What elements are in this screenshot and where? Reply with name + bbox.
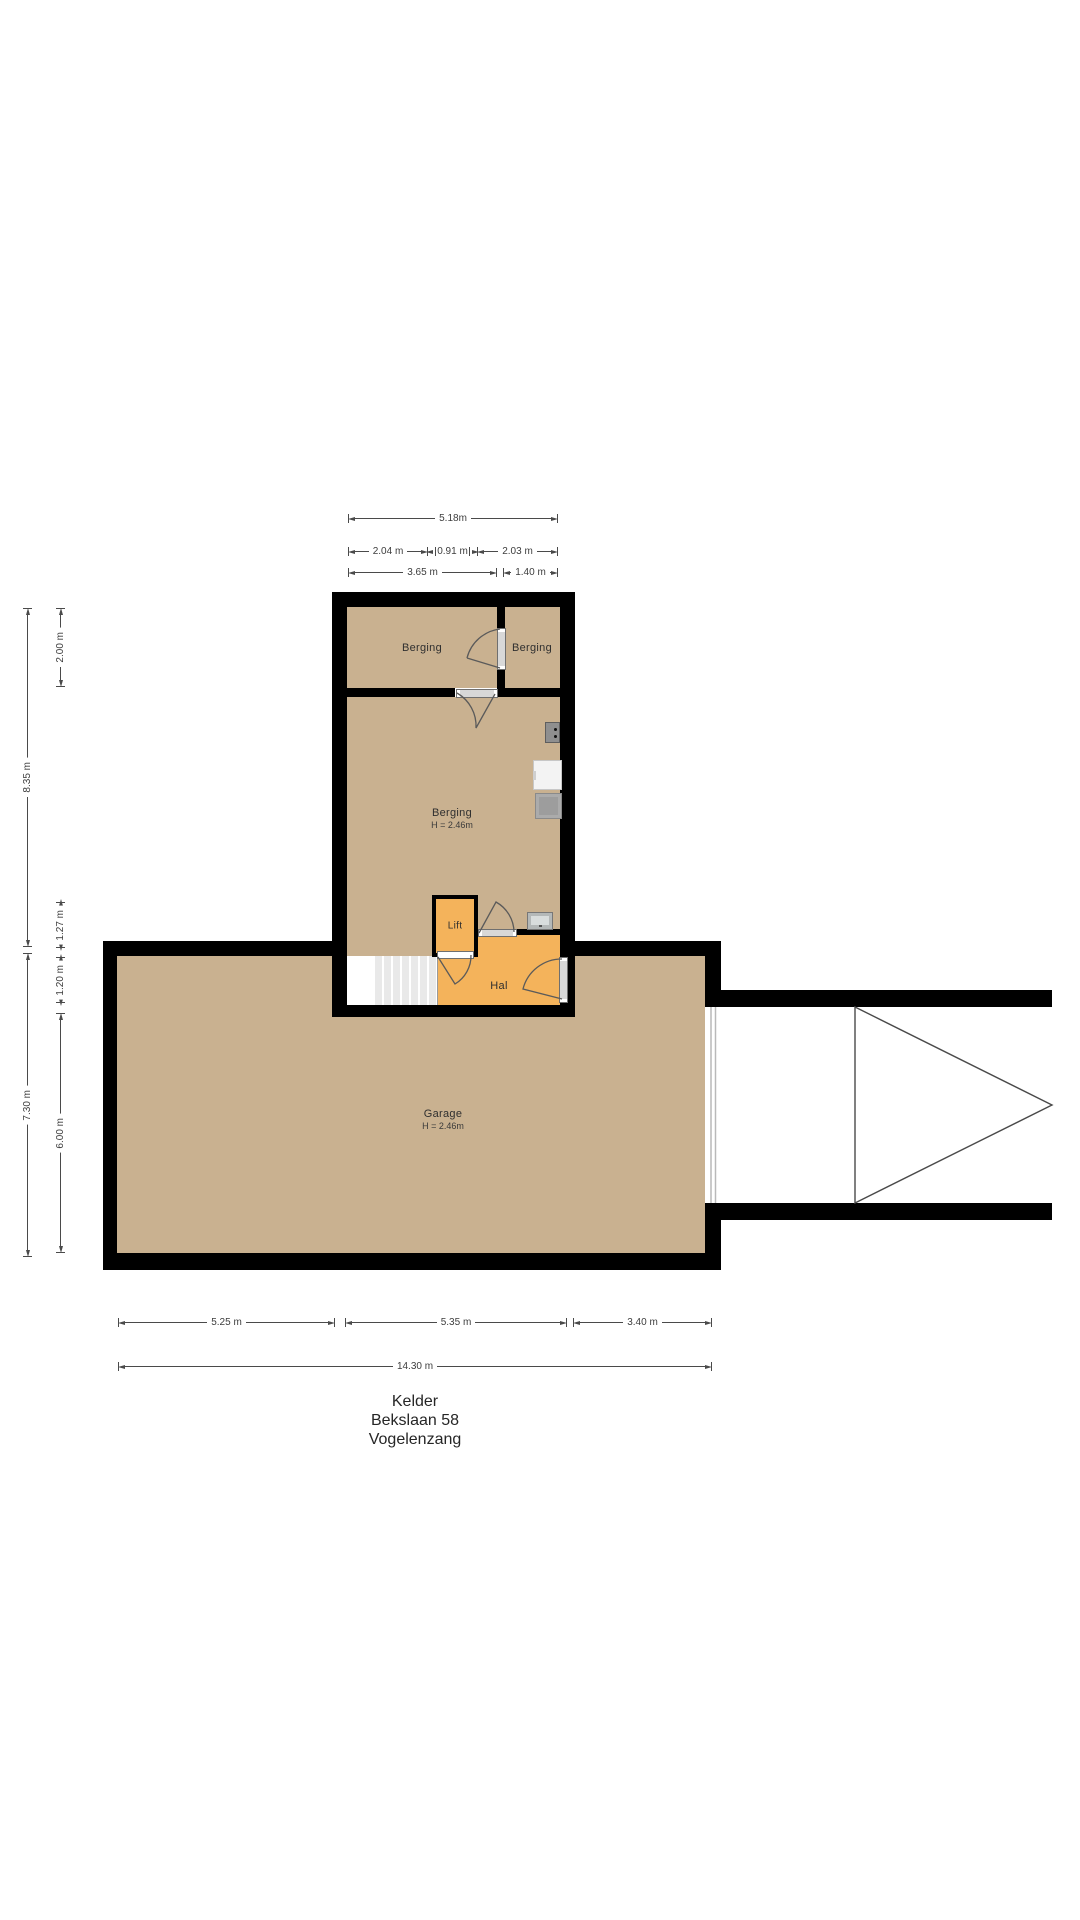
wall-segment [332,592,575,607]
plan-title-block: Kelder Bekslaan 58 Vogelenzang [265,1392,565,1449]
floorplan-page: Berging Berging Berging H = 2.46m Lift H… [0,0,1080,1920]
dim-bottom-525: 5.25 m [118,1317,335,1328]
room-label-berging-left: Berging [402,642,442,654]
wall-segment [103,1253,721,1270]
dim-bottom-535: 5.35 m [345,1317,567,1328]
dim-top-203: 2.03 m [477,546,558,557]
room-label-berging-right: Berging [512,642,552,654]
dim-left-600: 6.00 m [55,1013,66,1253]
door-berging-hal [478,929,517,937]
dim-left-127: 1.27 m [55,902,66,948]
door-lift [437,951,474,959]
door-hal-garage [559,957,568,1003]
meter-dot [539,925,542,927]
dim-left-120: 1.20 m [55,957,66,1003]
hal-floor [478,935,560,1005]
meter-screen [531,916,549,925]
dot [554,728,557,731]
driveway-arrow [855,1007,1052,1203]
room-label-hal: Hal [490,980,507,992]
room-label-lift: Lift [448,921,463,932]
dryer-icon [535,793,562,819]
meter-box-icon [527,912,553,930]
wall-segment [560,592,575,1017]
inner-panel [539,797,558,815]
dim-top-365: 3.65 m [348,567,497,578]
driveway-wall-bottom [705,1203,1052,1220]
driveway-wall-top [705,990,1052,1007]
city: Vogelenzang [265,1430,565,1449]
wall-segment [103,941,117,1270]
dim-bottom-340: 3.40 m [573,1317,712,1328]
dim-left-730: 7.30 m [22,953,33,1257]
floor-name: Kelder [265,1392,565,1411]
dim-top-091: 0.91 m [435,546,470,557]
consumer-unit-icon [545,722,560,743]
dim-bottom-overall: 14.30 m [118,1361,712,1372]
staircase [344,956,438,1005]
garage-door-line [711,1007,716,1203]
berging-main-floor-strip [347,929,432,956]
door-between-bergingen [497,628,506,670]
wall-segment [332,1005,575,1017]
washer-icon [533,760,562,790]
stair-treads [375,956,437,1005]
notch [533,771,536,780]
room-label-berging-main: Berging [432,807,472,819]
wall-segment [497,607,505,628]
ceiling-height-garage: H = 2.46m [422,1121,464,1131]
wall-segment [103,941,347,956]
ceiling-height-berging: H = 2.46m [431,820,473,830]
dim-top-overall: 5.18m [348,513,558,524]
dim-left-200: 2.00 m [55,608,66,687]
wall-segment [497,688,560,697]
door-berging-main [456,689,498,698]
address: Bekslaan 58 [265,1411,565,1430]
wall-segment [347,688,455,697]
hal-floor-left [437,957,478,1005]
room-label-garage: Garage [424,1108,463,1120]
dim-top-204: 2.04 m [348,546,428,557]
dot [554,735,557,738]
dim-left-835: 8.35 m [22,608,33,947]
wall-segment [575,941,721,956]
dim-top-140: 1.40 m [503,567,558,578]
